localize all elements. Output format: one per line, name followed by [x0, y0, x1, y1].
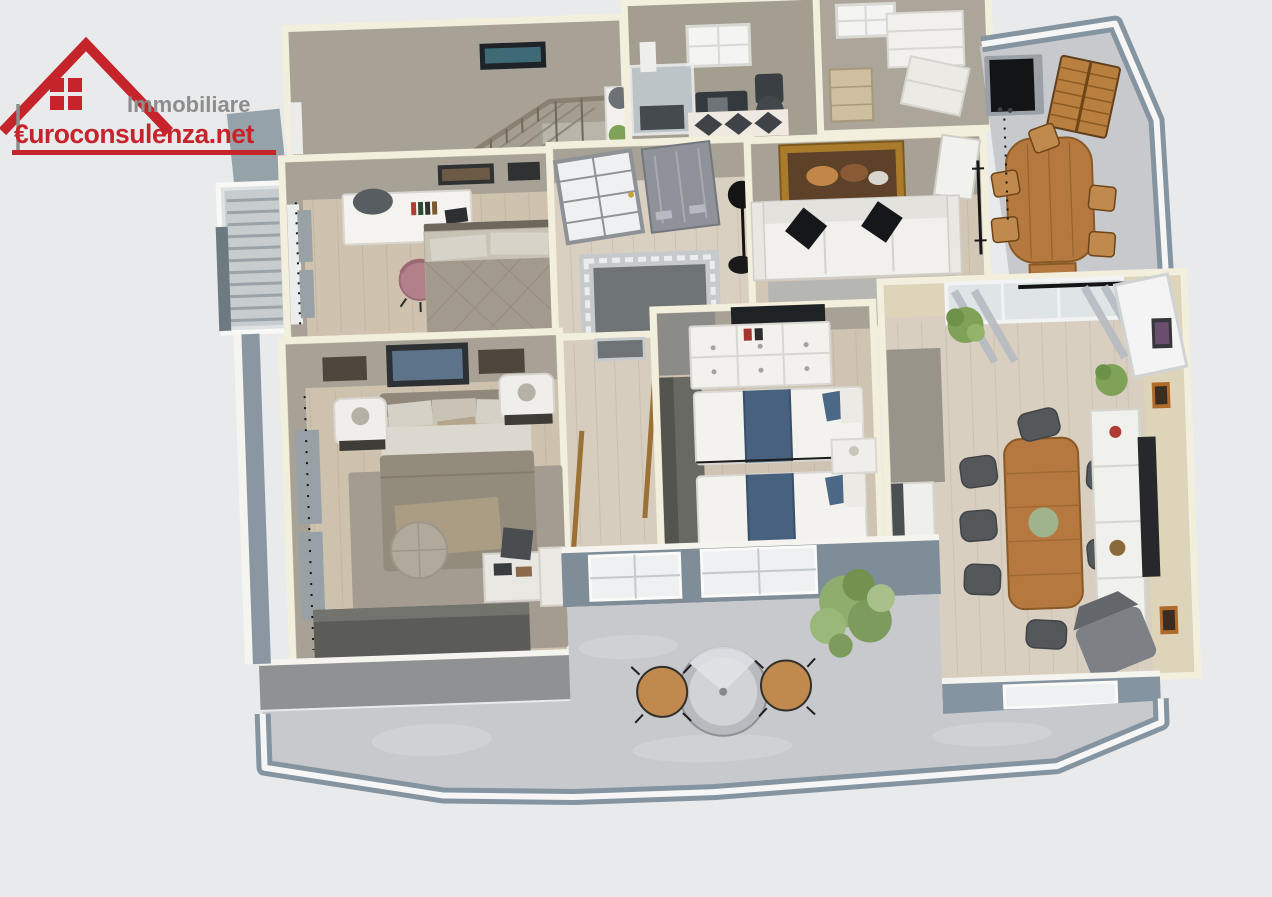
bathroom: [624, 0, 823, 145]
apartment-plan: [208, 0, 1201, 809]
white-armchair: [334, 397, 388, 451]
landing-stair-room: [285, 17, 635, 161]
logo-domain-text: €uroconsulenza.net: [14, 119, 255, 149]
floor-plan-render: Immobiliare €uroconsulenza.net: [0, 0, 1272, 897]
white-armchair: [499, 373, 555, 425]
bbq-grill: [984, 54, 1044, 116]
corridor: [556, 334, 665, 553]
diamond-rug: [688, 109, 789, 138]
kids-bedroom: [653, 302, 881, 550]
tray-table: [483, 552, 543, 602]
south-window: [1004, 682, 1117, 708]
round-pouf: [390, 521, 448, 579]
logo-brand-text: Immobiliare: [127, 92, 250, 117]
white-dresser: [689, 322, 831, 389]
wall-block: [886, 348, 945, 484]
south-window: [701, 546, 817, 596]
window: [687, 24, 750, 66]
gray-entry-door: [642, 141, 720, 233]
twin-bed: [697, 471, 867, 547]
master-bedroom: [282, 331, 571, 665]
beige-shelf: [830, 68, 874, 121]
wall-tv: [479, 42, 546, 70]
dining-table: [1004, 437, 1084, 609]
bed: [424, 219, 560, 334]
nightstand: [831, 438, 876, 474]
bedroom-2: [281, 149, 559, 340]
floor-plan-svg: Immobiliare €uroconsulenza.net: [0, 0, 1272, 897]
laundry-closet: [816, 0, 993, 134]
white-sofa: [751, 195, 962, 280]
open-door: [934, 135, 980, 200]
logo-underline: [12, 150, 276, 155]
glass-french-door: [555, 150, 643, 243]
south-window: [589, 553, 680, 600]
dark-cushion: [500, 527, 533, 560]
rug-edge: [596, 338, 645, 360]
window: [289, 102, 303, 154]
upper-terrace: [979, 22, 1166, 282]
